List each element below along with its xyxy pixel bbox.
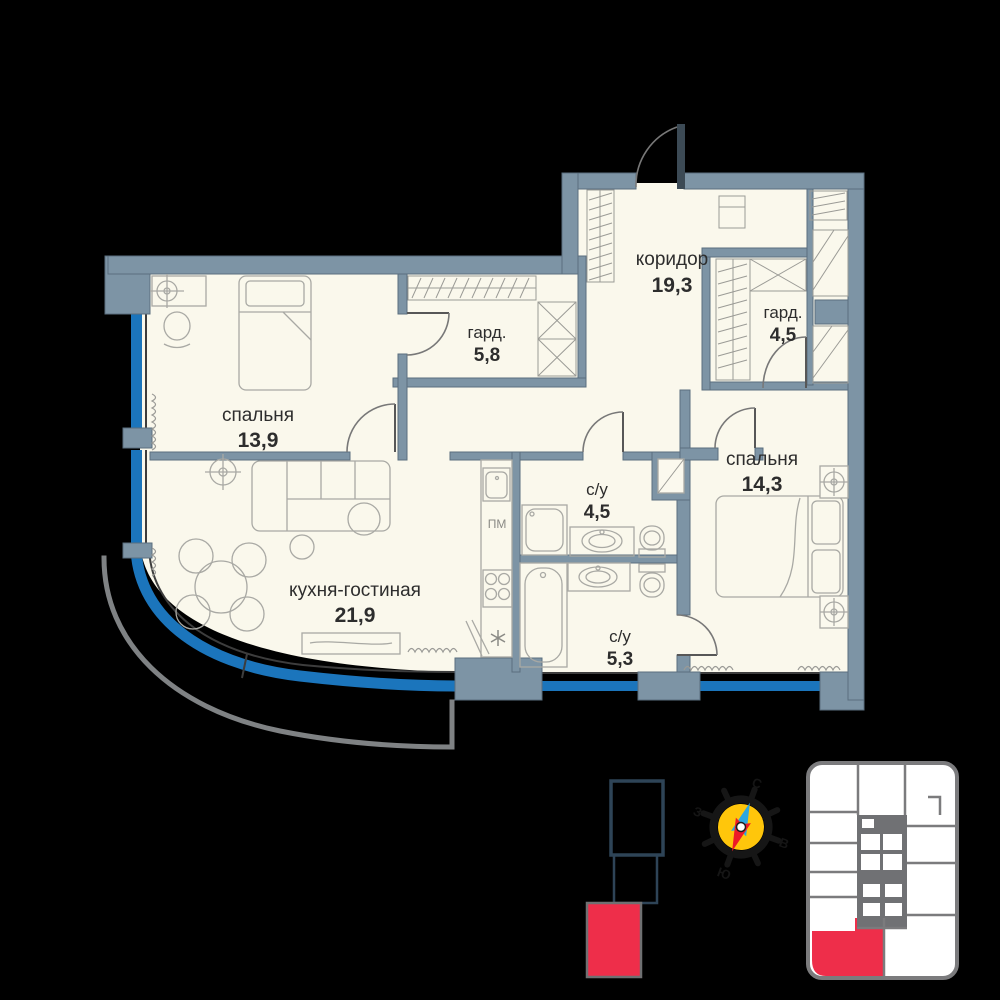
room-label-kitchen: кухня-гостиная	[289, 580, 421, 601]
wall-niche-light-icon	[820, 466, 848, 498]
room-label-wardrobe1: гард.	[468, 323, 507, 342]
room-area-bathroom1: 4,5	[584, 502, 611, 523]
entrance-door-leaf	[677, 124, 685, 189]
room-label-bathroom2: с/у	[609, 627, 631, 646]
room-area-corridor: 19,3	[652, 274, 693, 297]
room-label-wardrobe2: гард.	[764, 303, 803, 322]
room-label-bathroom1: с/у	[586, 480, 608, 499]
room-label-corridor: коридор	[636, 249, 709, 270]
room-area-bathroom2: 5,3	[607, 649, 633, 670]
floor-plan-image: ПМ	[0, 0, 1000, 1000]
floor-key-plan	[808, 763, 957, 978]
wall-niche-light-icon	[820, 596, 848, 628]
room-label-bedroom2: спальня	[726, 449, 798, 470]
room-area-bedroom2: 14,3	[742, 473, 783, 496]
room-area-bedroom1: 13,9	[238, 429, 279, 452]
room-area-wardrobe1: 5,8	[474, 345, 500, 366]
building-block-highlighted	[587, 903, 641, 977]
utility-shaft	[658, 459, 684, 493]
room-label-bedroom1: спальня	[222, 405, 294, 426]
room-area-wardrobe2: 4,5	[770, 325, 797, 346]
room-area-kitchen: 21,9	[335, 604, 376, 627]
dishwasher-label: ПМ	[488, 517, 507, 531]
